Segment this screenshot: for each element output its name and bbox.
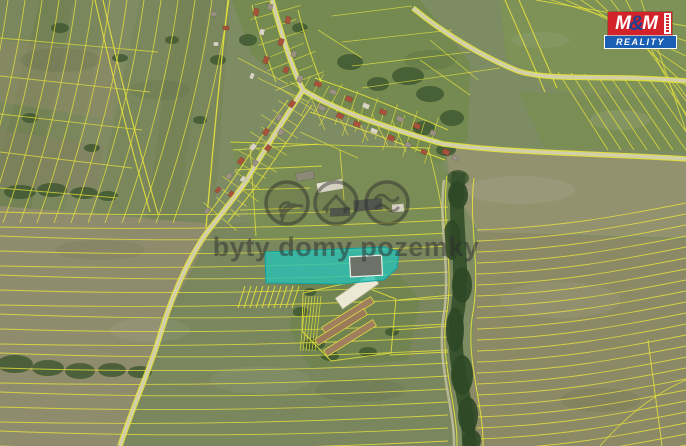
logo-top-red-box: M&M <box>608 12 672 35</box>
listing-map-image: byty domy pozemky M&M REALITY <box>0 0 686 446</box>
watermark-circle <box>366 182 408 224</box>
watermark-text: byty domy pozemky <box>213 232 480 262</box>
mm-reality-logo: M&M REALITY <box>604 12 679 49</box>
logo-reality-text: REALITY <box>604 35 677 49</box>
watermark-circle <box>315 182 357 224</box>
logo-mm-text: M&M <box>608 11 664 35</box>
logo-side-text <box>664 13 671 34</box>
aerial-map-canvas: byty domy pozemky <box>0 0 686 446</box>
